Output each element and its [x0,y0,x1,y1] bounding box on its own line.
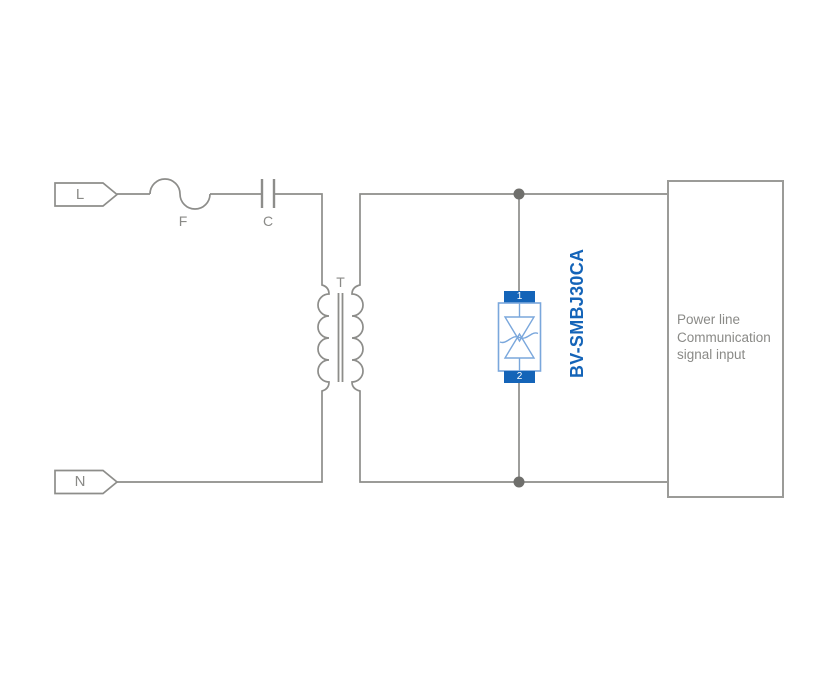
transformer-label: T [325,271,356,293]
tvs-part-number: BV-SMBJ30CA [567,249,588,378]
load-box-line: signal input [677,346,781,364]
tvs-pin2-label: 2 [504,371,535,383]
fuse-label: F [168,210,198,232]
tvs-pin1-label: 1 [504,291,535,303]
transformer-primary-winding [117,194,329,482]
load-box-line: Power line [677,311,781,329]
junction-dot-top [514,189,525,200]
terminal-L-label: L [54,184,106,206]
capacitor-label: C [253,210,283,232]
load-box-line: Communication [677,329,781,347]
fuse-symbol [150,179,210,209]
load-box-text: Power line Communication signal input [677,311,781,364]
junction-dot-bottom [514,477,525,488]
schematic-page: L N F C T 1 2 BV-SMBJ30CA Power line Com… [0,0,832,675]
terminal-N-label: N [54,471,106,493]
